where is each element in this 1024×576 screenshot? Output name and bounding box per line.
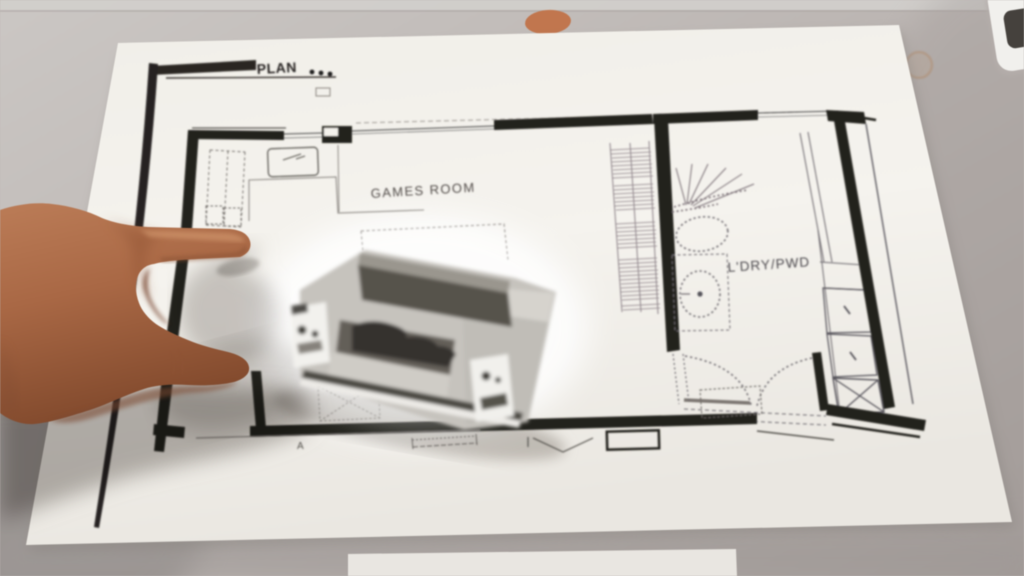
svg-text:PLAN: PLAN xyxy=(256,59,297,77)
svg-text:A: A xyxy=(297,441,304,452)
